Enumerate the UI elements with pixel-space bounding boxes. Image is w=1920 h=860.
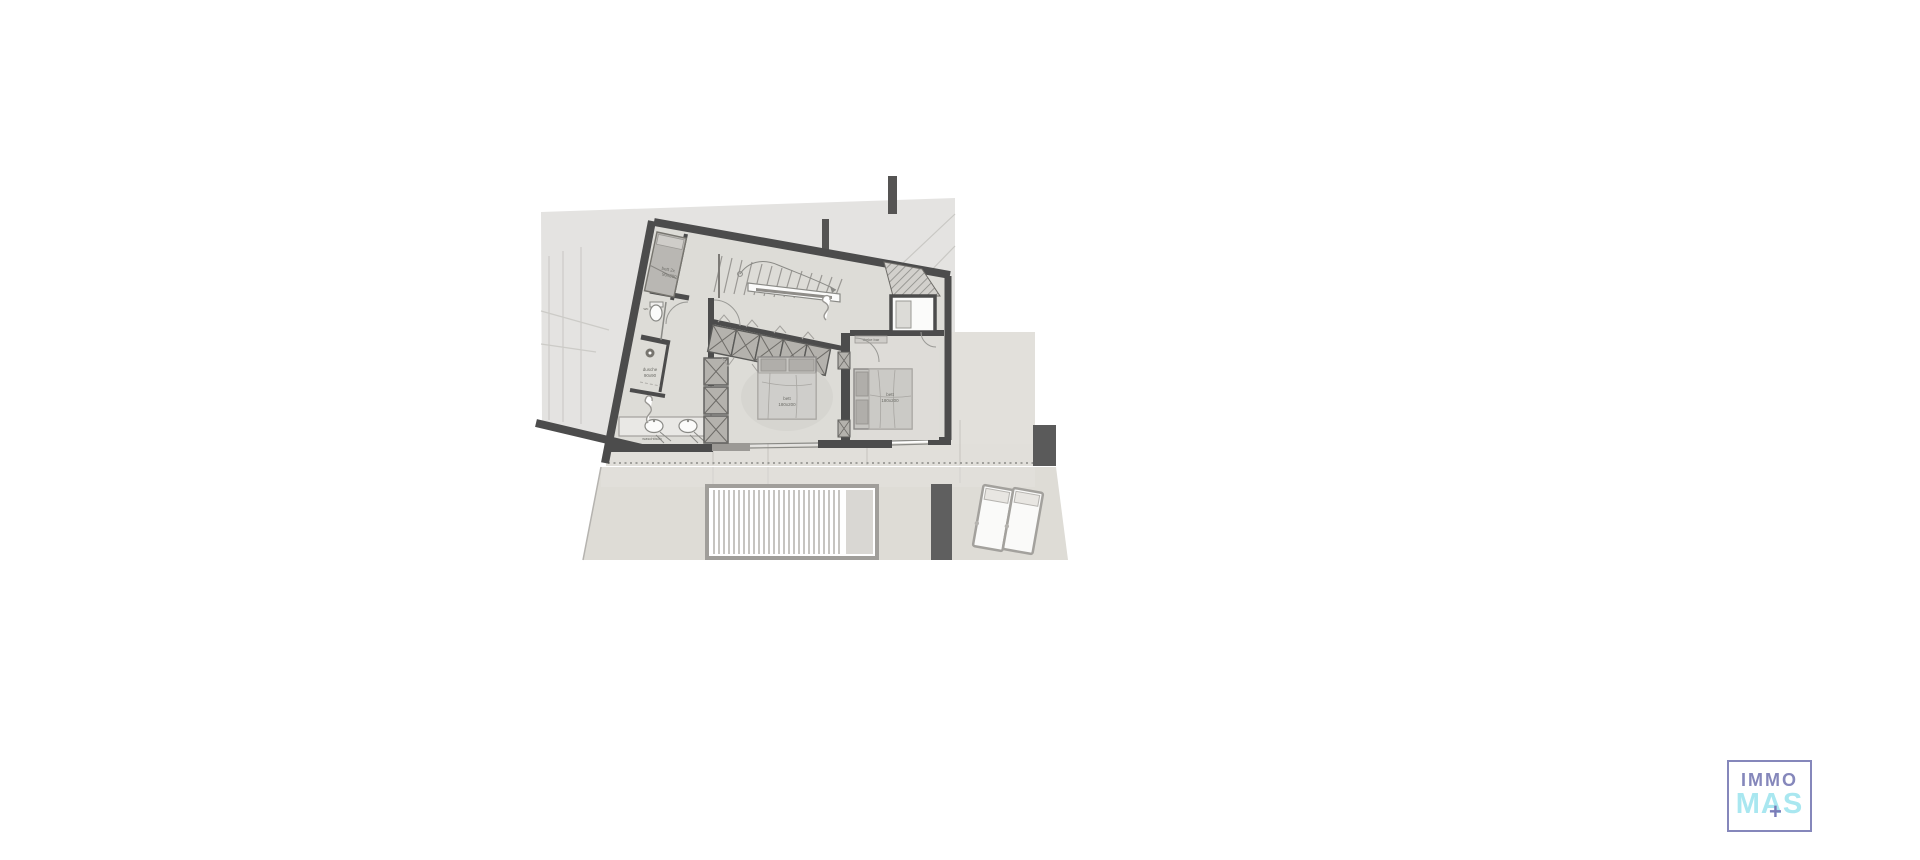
logo-plus-icon: + — [1769, 799, 1782, 825]
terrace-east — [948, 332, 1035, 444]
pergola-end-panel — [846, 490, 873, 554]
logo-line1: IMMO — [1729, 771, 1810, 789]
screenshot-canvas: bett 2x 90x200 wc dusche 90x90 waschtisc… — [0, 0, 1920, 860]
glass-lines-2 — [892, 440, 928, 445]
master-bed-label-2: 180x200 — [778, 402, 796, 407]
guest-bed-label-2: 180x200 — [881, 398, 899, 403]
logo-line2-wrap: MAS + — [1729, 789, 1810, 821]
guest-bed-label-1: bett — [886, 392, 894, 397]
bar-label: theke bar — [863, 337, 880, 342]
wc-label: wc — [644, 306, 649, 311]
toilet — [650, 302, 663, 321]
bathtub — [896, 301, 911, 328]
master-bed-label-1: bett — [783, 396, 791, 401]
master-bed — [758, 357, 816, 419]
neighbor-wall-stub — [888, 176, 897, 214]
shower-label-1: dusche — [643, 367, 658, 372]
terrace-wall-stub — [1033, 425, 1056, 466]
immomas-logo: IMMO MAS + — [1727, 760, 1812, 832]
planter-bar — [931, 484, 952, 560]
master-closet-column — [704, 358, 728, 443]
guest-bedroom: theke bar bett 180x200 — [850, 333, 944, 440]
boundary-wall-stub — [822, 219, 829, 253]
vanity-label: waschtisch — [642, 436, 662, 441]
pergola — [707, 486, 877, 558]
floor-plan-drawing: bett 2x 90x200 wc dusche 90x90 waschtisc… — [0, 0, 1920, 860]
door-frame-segment — [712, 443, 750, 451]
shower-label-2: 90x90 — [644, 373, 657, 378]
